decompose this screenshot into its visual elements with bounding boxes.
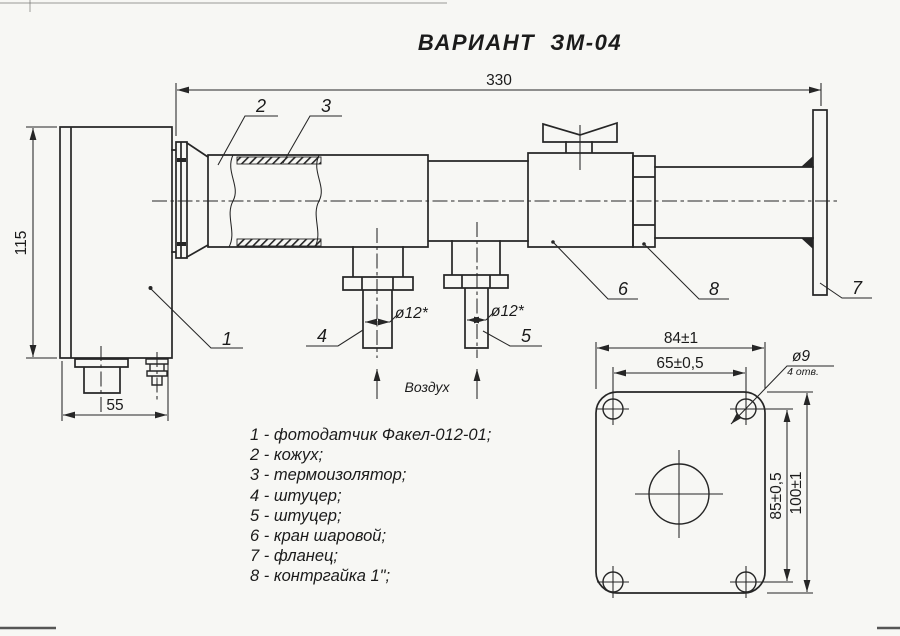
hatch-band-top bbox=[237, 157, 321, 164]
callout-4-label: 4 bbox=[317, 326, 327, 346]
center-crosshair bbox=[635, 450, 723, 538]
parts-item-7: 7 - фланец; bbox=[250, 547, 338, 565]
dim-o12-right: ø12* bbox=[491, 303, 525, 320]
dimension-hole-spacing-horizontal: 65±0,5 bbox=[613, 355, 746, 394]
callout-1: 1 bbox=[149, 286, 244, 349]
dimension-fitting5-bore: ø12* bbox=[467, 303, 525, 320]
flange-center-bore bbox=[635, 450, 723, 538]
hole-count-note: 4 отв. bbox=[787, 366, 819, 378]
dim-55: 55 bbox=[106, 397, 123, 414]
dim-115: 115 bbox=[13, 231, 30, 256]
callout-1-label: 1 bbox=[222, 329, 232, 349]
main-view: Воздух 330 115 55 ø12* bbox=[13, 72, 872, 421]
flange-front-view: 84±1 65±0,5 ø9 4 отв. 85±0,5 100±1 bbox=[596, 330, 834, 598]
technical-drawing: ВАРИАНТ ЗМ-04 bbox=[0, 0, 900, 636]
weld-fillets bbox=[801, 156, 813, 249]
dim-85: 85±0,5 bbox=[768, 472, 785, 519]
parts-item-8: 8 - контргайка 1"; bbox=[250, 567, 391, 585]
dim-100: 100±1 bbox=[788, 472, 805, 515]
callout-8-label: 8 bbox=[709, 279, 719, 299]
parts-item-5: 5 - штуцер; bbox=[250, 507, 342, 525]
parts-item-3: 3 - термоизолятор; bbox=[250, 466, 407, 484]
callout-7-label: 7 bbox=[852, 278, 863, 298]
hatch-band-bottom bbox=[237, 239, 321, 246]
parts-item-6: 6 - кран шаровой; bbox=[250, 527, 386, 545]
air-label: Воздух bbox=[405, 379, 451, 395]
callout-5-label: 5 bbox=[521, 326, 532, 346]
mounting-plate bbox=[172, 142, 187, 258]
callout-2-label: 2 bbox=[255, 96, 266, 116]
air-flow: Воздух bbox=[377, 369, 477, 399]
parts-item-1: 1 - фотодатчик Факел-012-01; bbox=[250, 426, 492, 444]
callout-6-label: 6 bbox=[618, 279, 629, 299]
dim-84: 84±1 bbox=[664, 330, 698, 347]
ball-valve bbox=[528, 123, 633, 247]
callout-4: 4 bbox=[306, 326, 363, 346]
dim-o12-left: ø12* bbox=[395, 305, 429, 322]
photodetector-body bbox=[60, 127, 172, 412]
dim-o9: ø9 bbox=[792, 348, 810, 365]
drawing-sheet: ВАРИАНТ ЗМ-04 bbox=[0, 0, 900, 636]
fitting-4 bbox=[343, 247, 413, 348]
flange-side-view bbox=[813, 110, 827, 295]
callout-3-label: 3 bbox=[321, 96, 331, 116]
dim-330: 330 bbox=[486, 72, 512, 89]
dimension-body-depth: 55 bbox=[62, 361, 168, 421]
dimension-fitting4-bore: ø12* bbox=[365, 305, 429, 322]
outlet-pipe bbox=[655, 156, 813, 249]
parts-item-2: 2 - кожух; bbox=[249, 446, 323, 464]
callout-8: 8 bbox=[642, 242, 729, 299]
parts-list: 1 - фотодатчик Факел-012-01; 2 - кожух; … bbox=[249, 426, 492, 585]
parts-item-4: 4 - штуцер; bbox=[250, 487, 342, 505]
dimension-body-height: 115 bbox=[13, 127, 57, 358]
fitting-5 bbox=[444, 241, 508, 348]
dimension-overall-length: 330 bbox=[176, 72, 821, 136]
dim-65: 65±0,5 bbox=[656, 355, 703, 372]
callout-5: 5 bbox=[483, 326, 542, 346]
flange-plate-outline bbox=[596, 392, 765, 593]
callout-3: 3 bbox=[283, 96, 342, 163]
page-title: ВАРИАНТ ЗМ-04 bbox=[418, 30, 622, 55]
callout-6: 6 bbox=[551, 240, 638, 299]
